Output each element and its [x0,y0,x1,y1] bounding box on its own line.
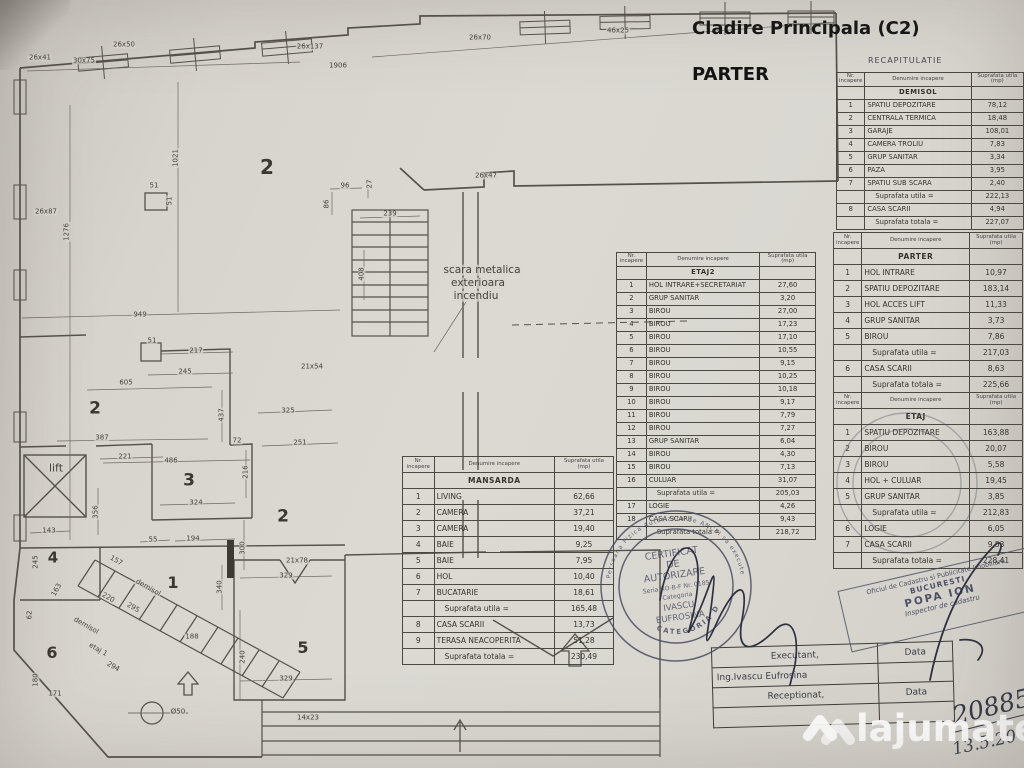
table-cell: 3,95 [971,164,1023,177]
table-cell: BAIE [434,537,554,553]
table-cell: Nr. incapere [403,457,435,473]
table-row: 2SPATIU DEPOZITARE183,14 [834,281,1023,297]
table-cell: 6 [834,361,862,377]
table-row: MANSARDA [403,473,614,489]
table-row: 2GRUP SANITAR3,20 [617,292,816,305]
table-cell: 183,14 [970,281,1023,297]
table-row: 1HOL INTRARE+SECRETARIAT27,60 [617,279,816,292]
table-cell: GRUP SANITAR [865,151,971,164]
table-row: 6CASA SCARII8,63 [834,361,1023,377]
entrance-steps [262,698,660,757]
table-cell: 13 [617,435,647,448]
table-cell: Nr. incapere [834,233,862,249]
table-cell: 27,60 [760,279,816,292]
table-cell: CASA SCARII [434,617,554,633]
table-cell: PAZA [865,164,971,177]
table-cell: BIROU [646,305,759,318]
table-row: 7BIROU9,15 [617,357,816,370]
table-cell: CAMERA [434,505,554,521]
table-cell: Suprafata utila = [862,345,970,361]
table-cell: BIROU [646,396,759,409]
table-cell: 7 [617,357,647,370]
table-row: 6PAZA3,95 [837,164,1024,177]
table-cell: Denumire incapere [865,73,971,87]
table-cell: 225,66 [970,377,1023,393]
table-demisol: Nr. incapereDenumire incapereSuprafata u… [836,72,1024,230]
table-row: 6HOL10,40 [403,569,614,585]
table-cell [617,266,647,279]
table-cell: BIROU [646,383,759,396]
table-cell: Suprafata utila (mp) [554,457,613,473]
table-row: Suprafata totala =225,66 [834,377,1023,393]
table-cell: 1 [837,99,865,112]
table-cell: 7,83 [971,138,1023,151]
table-cell: BIROU [646,422,759,435]
table-cell: 2 [403,505,435,521]
watermark-text: lajumate [856,707,1024,750]
table-cell: 9,15 [760,357,816,370]
table-cell: 18,48 [971,112,1023,125]
table-row: 4GRUP SANITAR3,73 [834,313,1023,329]
table-cell [837,190,865,203]
table-row: 3BIROU27,00 [617,305,816,318]
table-row: 1HOL INTRARE10,97 [834,265,1023,281]
table-cell: Suprafata totala = [862,377,970,393]
table-row: 1LIVING62,66 [403,489,614,505]
table-cell: GRUP SANITAR [646,292,759,305]
table-cell [403,601,435,617]
table-cell: BAIE [434,553,554,569]
circle-detail [128,702,188,724]
table-row: 2CAMERA37,21 [403,505,614,521]
table-row: ETAJ2 [617,266,816,279]
table-row: 8BIROU10,25 [617,370,816,383]
table-mansarda: Nr. incapereDenumire incapereSuprafata u… [402,456,614,665]
table-cell: 3,34 [971,151,1023,164]
table-cell: Nr. incapere [834,393,862,409]
table-cell: SPATIU DEPOZITARE [865,99,971,112]
table-row: 13GRUP SANITAR6,04 [617,435,816,448]
signature-ink [600,480,860,700]
table-cell: 7 [837,177,865,190]
table-cell: 11 [617,409,647,422]
table-cell: PARTER [862,249,970,265]
table-row: Nr. incapereDenumire incapereSuprafata u… [617,253,816,267]
table-cell: Denumire incapere [646,253,759,267]
table-cell: HOL INTRARE+SECRETARIAT [646,279,759,292]
table-cell: GRUP SANITAR [862,313,970,329]
table-cell [834,249,862,265]
table-cell: 3 [617,305,647,318]
table-row: 3CAMERA19,40 [403,521,614,537]
table-row: Nr. incapereDenumire incapereSuprafata u… [837,73,1024,87]
table-cell: BIROU [862,329,970,345]
table-cell: 10,18 [760,383,816,396]
table-cell: 4 [403,537,435,553]
table-row: 7BUCATARIE18,61 [403,585,614,601]
table-row: DEMISOL [837,86,1024,99]
table-cell: 7,13 [760,461,816,474]
table-cell: 4,30 [760,448,816,461]
table-cell [403,649,435,665]
table-row: PARTER [834,249,1023,265]
table-cell: 3,20 [760,292,816,305]
table-cell: Denumire incapere [862,393,970,409]
table-cell: TERASA NEACOPERITA [434,633,554,649]
table-cell: 15 [617,461,647,474]
table-cell: 5 [617,331,647,344]
filled-pier [227,540,234,578]
table-cell: 8 [837,203,865,216]
table-row: Nr. incapereDenumire incapereSuprafata u… [403,457,614,473]
watermark: lajumate .ro [802,706,1024,750]
table-cell: 12 [617,422,647,435]
table-cell: CAMERA TROLIU [865,138,971,151]
table-cell: 7 [403,585,435,601]
table-cell: 9 [403,633,435,649]
table-row: 12BIROU7,27 [617,422,816,435]
table-cell: Suprafata utila (mp) [760,253,816,267]
table-cell: BIROU [646,357,759,370]
table-cell: 1 [403,489,435,505]
table-cell: 17,10 [760,331,816,344]
table-cell: HOL INTRARE [862,265,970,281]
table-row: 5BIROU7,86 [834,329,1023,345]
table-cell: CASA SCARII [865,203,971,216]
table-row: Suprafata utila =165,48 [403,601,614,617]
table-cell: 2 [834,281,862,297]
table-cell [834,377,862,393]
interior-stair [78,560,300,698]
table-cell: 108,01 [971,125,1023,138]
table-cell: Denumire incapere [862,233,970,249]
table-cell: Suprafata utila (mp) [970,233,1023,249]
table-row: Nr. incapereDenumire incapereSuprafata u… [834,233,1023,249]
table-cell: HOL [434,569,554,585]
table-cell: Suprafata totala = [865,216,971,229]
table-cell: LIVING [434,489,554,505]
lift-shaft [24,455,86,517]
table-row: 8CASA SCARII4,94 [837,203,1024,216]
table-cell: 9,17 [760,396,816,409]
building-title: Cladire Principala (C2) [692,18,920,39]
table-cell: 3 [403,521,435,537]
table-row: 5BAIE7,95 [403,553,614,569]
table-cell: GRUP SANITAR [646,435,759,448]
table-cell: 11,33 [970,297,1023,313]
table-cell [403,473,435,489]
table-cell: SPATIU SUB SCARA [865,177,971,190]
table-cell: 5 [403,553,435,569]
table-row: 9TERASA NEACOPERITA51,28 [403,633,614,649]
table-cell [837,86,865,99]
table-cell: BUCATARIE [434,585,554,601]
table-cell: 222,13 [971,190,1023,203]
table-cell: 6 [403,569,435,585]
table-cell [837,216,865,229]
table-cell [760,266,816,279]
table-cell: 10,55 [760,344,816,357]
table-cell: 6 [837,164,865,177]
table-cell: 4,94 [971,203,1023,216]
table-row: 1SPATIU DEPOZITARE78,12 [837,99,1024,112]
floor-title: PARTER [692,64,769,85]
table-cell: 3 [837,125,865,138]
table-row: 5GRUP SANITAR3,34 [837,151,1024,164]
table-cell: 2 [837,112,865,125]
table-cell: 4 [617,318,647,331]
table-cell: BIROU [646,461,759,474]
table-row: 8CASA SCARII13,73 [403,617,614,633]
table-cell: 10,25 [760,370,816,383]
table-cell: 7,86 [970,329,1023,345]
table-cell: CENTRALA TERMICA [865,112,971,125]
exterior-stair [352,210,428,336]
table-row: Suprafata totala =230,49 [403,649,614,665]
table-cell: 10,97 [970,265,1023,281]
table-cell [971,86,1023,99]
table-cell: Suprafata utila = [865,190,971,203]
columns [141,193,167,361]
table-cell: 2,40 [971,177,1023,190]
table-cell: 6,04 [760,435,816,448]
table-cell: BIROU [646,370,759,383]
table-cell: GARAJE [865,125,971,138]
table-row: 11BIROU7,79 [617,409,816,422]
table-cell: 3,73 [970,313,1023,329]
inspector-signature-ink [900,520,1024,690]
table-row: 2CENTRALA TERMICA18,48 [837,112,1024,125]
table-row: 5BIROU17,10 [617,331,816,344]
table-row: 14BIROU4,30 [617,448,816,461]
table-cell: HOL ACCES LIFT [862,297,970,313]
table-cell: Denumire incapere [434,457,554,473]
table-cell: 7,27 [760,422,816,435]
table-cell: BIROU [646,409,759,422]
table-cell: ETAJ2 [646,266,759,279]
table-cell: 10 [617,396,647,409]
table-row: 3HOL ACCES LIFT11,33 [834,297,1023,313]
table-row: 6BIROU10,55 [617,344,816,357]
table-cell: MANSARDA [434,473,554,489]
table-row: 10BIROU9,17 [617,396,816,409]
table-cell: Nr. incapere [617,253,647,267]
table-cell: Suprafata totala = [434,649,554,665]
table-cell: 27,00 [760,305,816,318]
table-cell: 6 [617,344,647,357]
table-row: 4BAIE9,25 [403,537,614,553]
table-cell: BIROU [646,331,759,344]
table-cell: 2 [617,292,647,305]
table-cell: 3 [834,297,862,313]
table-cell: 217,03 [970,345,1023,361]
table-cell: 14 [617,448,647,461]
table-row: 15BIROU7,13 [617,461,816,474]
table-cell [834,345,862,361]
recap-title: RECAPITULATIE [868,56,942,65]
table-cell: DEMISOL [865,86,971,99]
table-row: Suprafata totala =227,07 [837,216,1024,229]
table-row: 4BIROU17,23 [617,318,816,331]
table-cell: BIROU [646,344,759,357]
table-cell [970,249,1023,265]
table-parter: Nr. incapereDenumire incapereSuprafata u… [833,232,1023,393]
table-row: Suprafata utila =217,03 [834,345,1023,361]
table-cell: 17,23 [760,318,816,331]
table-cell: 1 [617,279,647,292]
table-cell: Suprafata utila (mp) [971,73,1023,87]
lajumate-logo-icon [802,706,856,750]
table-cell: 8 [617,370,647,383]
table-cell: 4 [837,138,865,151]
table-row: 4CAMERA TROLIU7,83 [837,138,1024,151]
table-cell: 4 [834,313,862,329]
table-cell: Suprafata utila (mp) [970,393,1023,409]
table-cell: SPATIU DEPOZITARE [862,281,970,297]
table-cell: Suprafata utila = [434,601,554,617]
table-cell: 9 [617,383,647,396]
table-cell: 8,63 [970,361,1023,377]
table-row: 7SPATIU SUB SCARA2,40 [837,177,1024,190]
table-cell: CAMERA [434,521,554,537]
table-cell: 5 [834,329,862,345]
table-cell: BIROU [646,318,759,331]
table-cell: BIROU [646,448,759,461]
table-cell: 5 [837,151,865,164]
table-cell: Nr. incapere [837,73,865,87]
table-cell: 78,12 [971,99,1023,112]
table-row: Suprafata utila =222,13 [837,190,1024,203]
table-cell: CASA SCARII [862,361,970,377]
table-cell: 8 [403,617,435,633]
table-cell: 227,07 [971,216,1023,229]
table-row: 9BIROU10,18 [617,383,816,396]
table-cell: 1 [834,265,862,281]
table-row: 3GARAJE108,01 [837,125,1024,138]
table-row: Nr. incapereDenumire incapereSuprafata u… [834,393,1023,409]
table-cell: 7,79 [760,409,816,422]
